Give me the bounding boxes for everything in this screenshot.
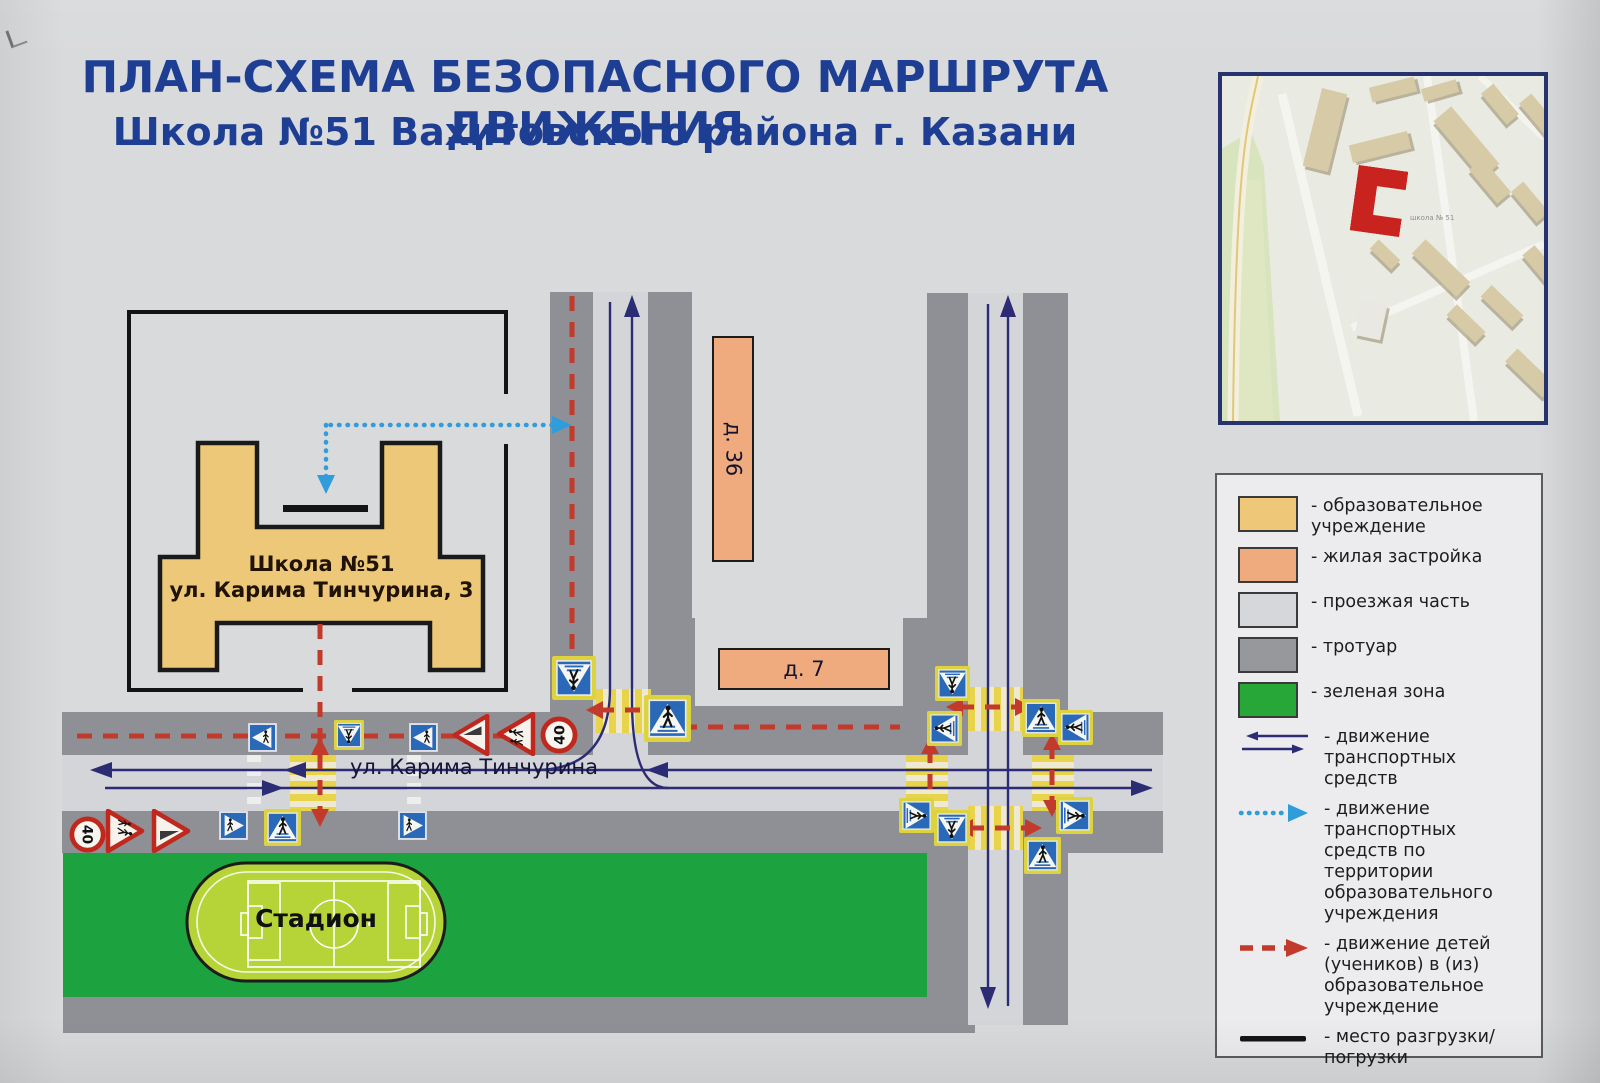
legend-item-loading: - место разгрузки/погрузки <box>1238 1027 1541 1069</box>
pedestrian-crossing-sign-icon <box>927 711 962 746</box>
service-route-icon <box>1238 799 1311 925</box>
legend-swatch-edu <box>1238 496 1298 532</box>
building-d7-label: д. 7 <box>783 657 824 681</box>
pedestrian-crossing-sign-icon <box>409 723 438 752</box>
pedestrian-crossing-sign-icon <box>398 811 427 840</box>
legend-label: - место разгрузки/погрузки <box>1324 1027 1522 1069</box>
crosswalk-school <box>290 755 336 811</box>
school-fence <box>352 688 508 692</box>
legend-item-vehicles: - движение транспортных средств <box>1238 727 1541 790</box>
legend-label: - тротуар <box>1311 637 1509 673</box>
stadium-label: Стадион <box>185 904 447 933</box>
roadway-vroad1 <box>593 292 648 755</box>
legend-label: - зеленая зона <box>1311 682 1509 718</box>
loading-area-mark <box>283 505 368 512</box>
legend-swatch-residential <box>1238 547 1298 583</box>
legend-item-roadway: - проезжая часть <box>1238 592 1541 628</box>
vehicle-route-icon <box>1238 727 1311 790</box>
legend-label: - образовательное учреждение <box>1311 496 1509 538</box>
school-building-label: Школа №51 ул. Карима Тинчурина, 3 <box>160 551 483 603</box>
legend-label: - проезжая часть <box>1311 592 1509 628</box>
pedestrian-crossing-sign-icon <box>644 695 691 742</box>
school-fence <box>127 310 508 314</box>
warning-triangle-sign-icon <box>451 714 491 756</box>
school-fence <box>127 310 131 692</box>
school-name: Школа №51 <box>160 551 483 577</box>
school-fence <box>504 444 508 692</box>
school-fence <box>127 688 303 692</box>
building-d36: д. 36 <box>712 336 754 562</box>
loading-area-icon <box>1238 1027 1311 1069</box>
legend-label: - движение транспортных средств <box>1324 727 1522 790</box>
legend-swatch-green-zone <box>1238 682 1298 718</box>
legend-label: - движение детей (учеников) в (из) образ… <box>1324 934 1522 1018</box>
route-plan-poster: ПЛАН-СХЕМА БЕЗОПАСНОГО МАРШРУТА ДВИЖЕНИЯ… <box>0 0 1600 1083</box>
legend-item-edu: - образовательное учреждение <box>1238 496 1541 538</box>
crosswalk-north <box>968 687 1023 731</box>
photo-artifact <box>5 26 27 49</box>
inset-school-label: школа № 51 <box>1410 214 1454 222</box>
sidewalk-vroad2-left <box>927 293 968 1025</box>
legend-item-residential: - жилая застройка <box>1238 547 1541 583</box>
pedestrian-crossing-sign-icon <box>1022 699 1060 737</box>
legend-item-green-zone: - зеленая зона <box>1238 682 1541 718</box>
legend-item-children: - движение детей (учеников) в (из) образ… <box>1238 934 1541 1018</box>
legend-swatch-roadway <box>1238 592 1298 628</box>
pedestrian-crossing-sign-icon <box>934 810 970 846</box>
school-address: ул. Карима Тинчурина, 3 <box>160 577 483 603</box>
crosswalk-south <box>968 806 1023 850</box>
sidewalk-vroad1-right <box>648 292 692 622</box>
children-warning-sign-icon <box>104 809 146 853</box>
warning-triangle-sign-icon <box>150 809 192 853</box>
svg-text:40: 40 <box>552 725 568 745</box>
sidewalk-vroad2-right <box>1023 293 1068 1025</box>
speed-limit-40-sign-icon: 40 <box>540 716 578 754</box>
crosswalk-t-junction <box>596 689 651 733</box>
page-subtitle: Школа №51 Вахитовского района г. Казани <box>0 110 1190 154</box>
street-name-label: ул. Карима Тинчурина <box>350 755 598 779</box>
speed-bump <box>247 755 261 811</box>
speed-limit-40-sign-icon: 40 <box>69 816 106 853</box>
pedestrian-crossing-sign-icon <box>219 811 248 840</box>
pedestrian-crossing-sign-icon <box>248 723 277 752</box>
sidewalk-vroad1-left <box>550 292 593 712</box>
pedestrian-crossing-sign-icon <box>899 798 934 833</box>
building-d36-label: д. 36 <box>721 422 745 477</box>
pedestrian-crossing-sign-icon <box>1056 797 1093 834</box>
pedestrian-crossing-sign-icon <box>935 666 970 701</box>
roadway-vroad2 <box>968 293 1023 1025</box>
pedestrian-crossing-sign-icon <box>334 720 364 750</box>
legend-item-vehicles-territory: - движение транспортных средств по терри… <box>1238 799 1541 925</box>
building-d7: д. 7 <box>718 648 890 690</box>
pedestrian-crossing-sign-icon <box>264 809 301 846</box>
legend-item-sidewalk: - тротуар <box>1238 637 1541 673</box>
children-warning-sign-icon <box>495 712 537 756</box>
children-route-icon <box>1238 934 1311 1018</box>
pedestrian-crossing-sign-icon <box>1024 837 1061 874</box>
legend-label: - движение транспортных средств по терри… <box>1324 799 1522 925</box>
legend-swatch-sidewalk <box>1238 637 1298 673</box>
legend-label: - жилая застройка <box>1311 547 1509 583</box>
sidewalk-below-green <box>63 997 975 1033</box>
legend: - образовательное учреждение - жилая зас… <box>1215 473 1543 1058</box>
school-fence <box>504 310 508 394</box>
pedestrian-crossing-sign-icon <box>1058 710 1093 745</box>
svg-text:40: 40 <box>78 825 94 844</box>
pedestrian-crossing-sign-icon <box>552 656 596 700</box>
inset-map: школа № 51 <box>1218 72 1548 425</box>
